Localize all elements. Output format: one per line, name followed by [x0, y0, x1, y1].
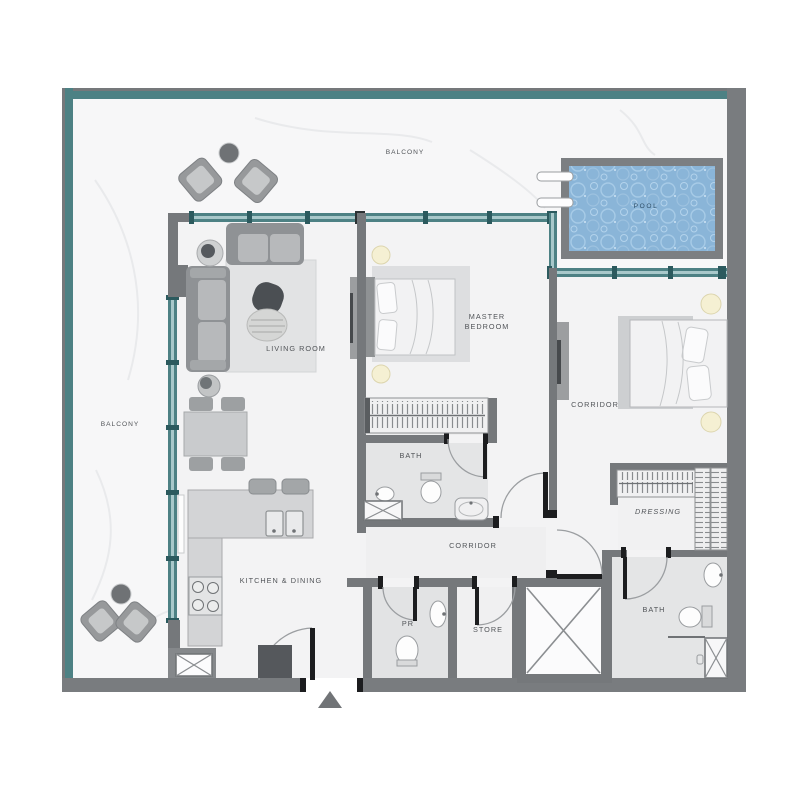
- pr-door-leaf: [413, 587, 417, 621]
- label-store: STORE: [473, 625, 503, 634]
- label-corridor-main: CORRIDOR: [449, 541, 497, 550]
- bar-stool: [249, 479, 276, 494]
- wall-lamp: [372, 246, 390, 264]
- dining-chair: [189, 457, 213, 471]
- master-bedroom-furniture: [365, 246, 488, 433]
- balcony-slider-door: [178, 495, 184, 553]
- entry-opening: [305, 678, 358, 692]
- master-bedroom-door-leaf: [543, 472, 548, 518]
- label-bath-master: BATH: [400, 451, 423, 460]
- toilet-tank: [421, 473, 441, 480]
- headboard: [366, 277, 375, 357]
- tv-icon: [557, 340, 561, 384]
- side-table: [219, 143, 239, 163]
- shelves: [695, 468, 710, 550]
- pouf: [247, 309, 287, 341]
- dining-chair: [221, 397, 245, 411]
- fridge: [258, 645, 292, 678]
- label-balcony-left: BALCONY: [101, 421, 140, 428]
- toilet-tank: [702, 606, 712, 627]
- label-balcony-top: BALCONY: [386, 149, 425, 156]
- floor-plan: BALCONY BALCONY POOL LIVING ROOM MASTER …: [0, 0, 800, 800]
- dining-table: [184, 412, 247, 456]
- pool-ladder: [537, 172, 573, 181]
- corridor-east-door-leaf: [557, 574, 602, 579]
- bar-stool: [282, 479, 309, 494]
- right-outer-wall: [727, 88, 746, 692]
- elevator-shaft: [517, 578, 610, 683]
- label-living-room: LIVING ROOM: [266, 344, 326, 353]
- side-table: [111, 584, 131, 604]
- label-bath-second: BATH: [643, 605, 666, 614]
- pillow: [376, 282, 397, 314]
- dressing-bath-door-leaf: [623, 557, 627, 599]
- floor-plan-drawing: BALCONY BALCONY POOL LIVING ROOM MASTER …: [0, 0, 800, 800]
- dining-chair: [189, 397, 213, 411]
- tv-icon: [350, 293, 353, 343]
- pool-ladder: [537, 198, 573, 207]
- label-pool: POOL: [634, 203, 659, 210]
- dining-chair: [221, 457, 245, 471]
- label-master-line2: BEDROOM: [465, 322, 510, 331]
- toilet-base: [397, 660, 417, 666]
- pool: [537, 158, 723, 259]
- shelves: [711, 468, 727, 550]
- pillow: [377, 319, 398, 350]
- toilet: [421, 481, 441, 503]
- master-bath-door-leaf: [483, 441, 487, 479]
- plant: [201, 244, 215, 258]
- entry-arrow-icon: [318, 691, 342, 708]
- pillow: [686, 365, 711, 401]
- shower-handle: [697, 655, 703, 664]
- label-dressing: DRESSING: [635, 507, 681, 516]
- label-pr: PR: [402, 619, 414, 628]
- label-master-line1: MASTER: [469, 312, 505, 321]
- label-kitchen: KITCHEN & DINING: [240, 576, 323, 585]
- wall-lamp: [701, 294, 721, 314]
- wall-lamp: [372, 365, 390, 383]
- label-corridor-upper: CORRIDOR: [571, 400, 619, 409]
- store-door-leaf: [475, 587, 479, 625]
- wall-lamp: [701, 412, 721, 432]
- bottom-outer-wall: [62, 678, 746, 692]
- entry-door-leaf: [310, 628, 315, 680]
- toilet: [679, 607, 701, 627]
